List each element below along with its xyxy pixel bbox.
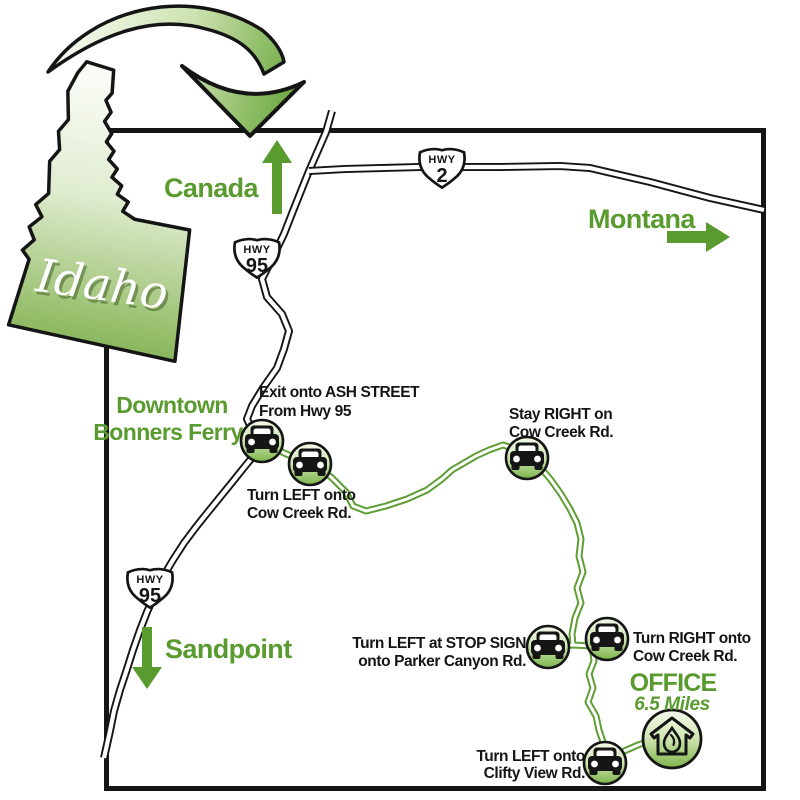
direction-label-left-cow-creek: Turn LEFT onto Cow Creek Rd.	[247, 487, 356, 522]
label-montana: Montana	[588, 204, 696, 234]
car-icon	[584, 742, 626, 784]
city-line-2: Bonners Ferry	[93, 419, 243, 445]
marker-turn-left-clifty-view	[584, 742, 626, 784]
marker-stay-right-cow-creek	[506, 437, 548, 479]
direction-line-2: Clifty View Rd.	[484, 765, 585, 782]
shield-number: 2	[436, 165, 447, 187]
direction-line-1: Turn LEFT onto	[476, 748, 585, 765]
direction-label-left-parker-canyon: Turn LEFT at STOP SIGN onto Parker Canyo…	[352, 635, 526, 670]
marker-turn-left-cow-creek	[289, 443, 331, 485]
direction-line-2: onto Parker Canyon Rd.	[358, 653, 526, 670]
direction-label-stay-right-cow-creek: Stay RIGHT on Cow Creek Rd.	[509, 406, 613, 441]
direction-line-1: Turn RIGHT onto	[633, 630, 751, 647]
directions-map-page: HWY 95 HWY 2 HWY 95 Canada Montana Sa	[0, 0, 800, 800]
car-icon	[289, 443, 331, 485]
curved-arrow-head	[182, 66, 304, 136]
shield-number: 95	[246, 255, 268, 277]
direction-line-1: Turn LEFT onto	[247, 487, 356, 504]
direction-label-left-clifty-view: Turn LEFT onto Clifty View Rd.	[476, 748, 585, 782]
direction-label-right-cow-creek: Turn RIGHT onto Cow Creek Rd.	[633, 630, 751, 665]
direction-line-2: From Hwy 95	[259, 403, 352, 420]
label-office-distance: 6.5 Miles	[634, 694, 710, 715]
car-icon	[241, 420, 283, 462]
direction-line-2: Cow Creek Rd.	[509, 424, 613, 441]
car-icon	[586, 618, 628, 660]
direction-line-2: Cow Creek Rd.	[633, 648, 737, 665]
directions-map-canvas: HWY 95 HWY 2 HWY 95 Canada Montana Sa	[0, 0, 800, 800]
label-sandpoint: Sandpoint	[165, 634, 292, 664]
marker-turn-right-cow-creek	[586, 618, 628, 660]
label-canada: Canada	[164, 173, 260, 203]
marker-exit-ash-street	[241, 420, 283, 462]
label-downtown-bonners-ferry: Downtown Bonners Ferry	[93, 392, 243, 445]
label-office: OFFICE	[630, 669, 717, 697]
direction-line-2: Cow Creek Rd.	[247, 505, 351, 522]
direction-line-1: Stay RIGHT on	[509, 406, 612, 423]
car-icon	[506, 437, 548, 479]
direction-line-1: Turn LEFT at STOP SIGN	[352, 635, 526, 652]
city-line-1: Downtown	[116, 392, 227, 418]
marker-stop-sign-parker-canyon	[527, 626, 569, 668]
car-icon	[527, 626, 569, 668]
office-marker	[643, 710, 701, 768]
direction-line-1: Exit onto ASH STREET	[259, 384, 420, 401]
shield-number: 95	[139, 585, 161, 607]
